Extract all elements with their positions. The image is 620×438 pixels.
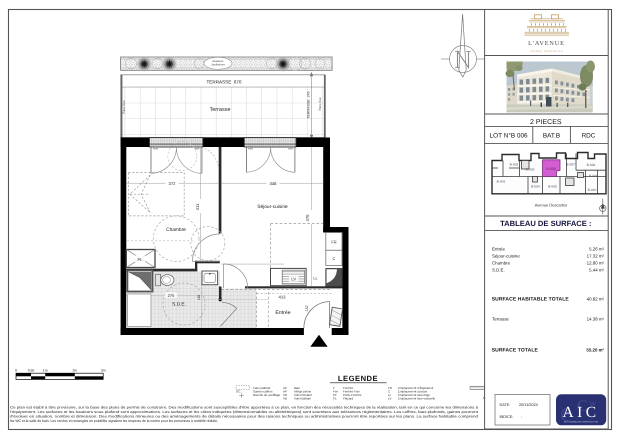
svg-text:LEGENDE: LEGENDE — [338, 374, 378, 383]
svg-text:TERRASSE 670: TERRASSE 670 — [207, 80, 242, 85]
svg-text:Chambre: Chambre — [492, 260, 511, 265]
svg-text:275: 275 — [168, 293, 175, 298]
svg-text:Ce plan est établi à titre pro: Ce plan est établi à titre provisoire, s… — [10, 406, 478, 410]
svg-text:B-003: B-003 — [526, 167, 535, 171]
svg-text:Terrasse: Terrasse — [492, 316, 509, 321]
svg-text:LL: LL — [313, 277, 317, 281]
svg-text:VB: VB — [283, 397, 287, 401]
svg-text:Pare-Vue: Pare-Vue — [122, 100, 126, 114]
svg-text:L'AVENUE: L'AVENUE — [528, 40, 565, 47]
svg-text:411: 411 — [195, 203, 200, 210]
svg-text:Bouche de soufflage: Bouche de soufflage — [253, 393, 281, 397]
svg-text:20/11/2024: 20/11/2024 — [519, 403, 538, 407]
svg-text:17.32 m²: 17.32 m² — [587, 253, 605, 258]
svg-text:40.82 m²: 40.82 m² — [587, 296, 605, 301]
svg-text:Séjour-cuisine: Séjour-cuisine — [492, 253, 520, 258]
svg-text:S.D.E.: S.D.E. — [172, 302, 186, 308]
svg-text:413: 413 — [279, 294, 287, 299]
svg-text:LV: LV — [291, 277, 296, 282]
svg-text:SURFACE HABITABLE TOTALE: SURFACE HABITABLE TOTALE — [492, 296, 570, 302]
svg-text:2 PIECES: 2 PIECES — [530, 119, 562, 126]
svg-text:S.D.E.: S.D.E. — [492, 267, 505, 272]
svg-text:55.20 m²: 55.20 m² — [586, 348, 604, 353]
svg-text:Volet Battant: Volet Battant — [294, 397, 311, 401]
svg-text:0.50: 0.50 — [28, 369, 35, 373]
svg-text:BAT.B: BAT.B — [543, 132, 560, 139]
svg-text:14.38 m²: 14.38 m² — [587, 316, 605, 321]
svg-text:Entrée: Entrée — [492, 246, 505, 251]
svg-text:B-002: B-002 — [510, 163, 519, 167]
svg-text:C: C — [333, 256, 336, 261]
svg-text:Avenue Descartes: Avenue Descartes — [535, 202, 568, 207]
svg-text:Chambre: Chambre — [166, 227, 186, 233]
svg-text:les WC et la salle de bain. Le: les WC et la salle de bain. Les cercles … — [10, 419, 218, 423]
svg-text:LOT N°B 006: LOT N°B 006 — [490, 132, 528, 139]
svg-text:Terrasse: Terrasse — [209, 107, 230, 113]
svg-text:RDC: RDC — [582, 132, 596, 139]
svg-text:AIC: AIC — [563, 404, 600, 421]
svg-text:l'équipement. Les surfaces et: l'équipement. Les surfaces et les hauteu… — [10, 410, 478, 414]
svg-text:LV: LV — [388, 397, 391, 401]
svg-text:12.80 m²: 12.80 m² — [587, 260, 605, 265]
svg-text:B-006: B-006 — [546, 167, 555, 171]
svg-text:B-010: B-010 — [588, 188, 597, 192]
svg-text:5.44 m²: 5.44 m² — [589, 267, 604, 272]
svg-text:ART IMMOBILIER CONSTRUCTION: ART IMMOBILIER CONSTRUCTION — [564, 421, 599, 424]
svg-text:1m: 1m — [43, 369, 48, 373]
svg-text:Entrée: Entrée — [275, 310, 290, 316]
svg-text:5.26 m²: 5.26 m² — [589, 246, 604, 251]
svg-text:132: 132 — [305, 305, 309, 311]
svg-text:PL: PL — [333, 397, 337, 401]
svg-text:348: 348 — [270, 181, 278, 186]
svg-text:SURFACE TOTALE: SURFACE TOTALE — [492, 348, 539, 354]
svg-text:Pare-Vue: Pare-Vue — [318, 97, 322, 111]
svg-text:198: 198 — [197, 295, 201, 301]
svg-text:B-001: B-001 — [497, 180, 506, 184]
svg-text:Séjour-cuisine: Séjour-cuisine — [257, 204, 288, 210]
svg-text:AVENUE DESCARTES: AVENUE DESCARTES — [530, 50, 563, 53]
svg-text:INDICE:: INDICE: — [500, 415, 514, 419]
svg-text:Placard: Placard — [343, 397, 354, 401]
svg-text:3m: 3m — [101, 369, 106, 373]
svg-text:TABLEAU DE SURFACE :: TABLEAU DE SURFACE : — [500, 219, 591, 228]
svg-text:B-007: B-007 — [566, 162, 575, 166]
svg-text:FR: FR — [331, 239, 336, 244]
svg-text:PL: PL — [138, 257, 144, 262]
svg-text:TERRASSE 245: TERRASSE 245 — [307, 91, 311, 118]
svg-text:B-009: B-009 — [589, 174, 598, 178]
svg-text:Emplacement lave-vaisselle: Emplacement lave-vaisselle — [398, 397, 436, 401]
svg-text:475: 475 — [305, 214, 310, 222]
svg-text:2m: 2m — [72, 369, 77, 373]
svg-text:B-004: B-004 — [531, 185, 540, 189]
svg-text:Jardinières: Jardinières — [211, 63, 225, 67]
svg-text:d'évoluer en situation, nombre: d'évoluer en situation, nombre et dimens… — [10, 415, 478, 419]
svg-text:0: 0 — [15, 369, 17, 373]
svg-text:B-008: B-008 — [587, 163, 596, 167]
svg-text:B-005: B-005 — [548, 185, 557, 189]
svg-text:372: 372 — [169, 181, 177, 186]
svg-text:DATE:: DATE: — [500, 403, 511, 407]
